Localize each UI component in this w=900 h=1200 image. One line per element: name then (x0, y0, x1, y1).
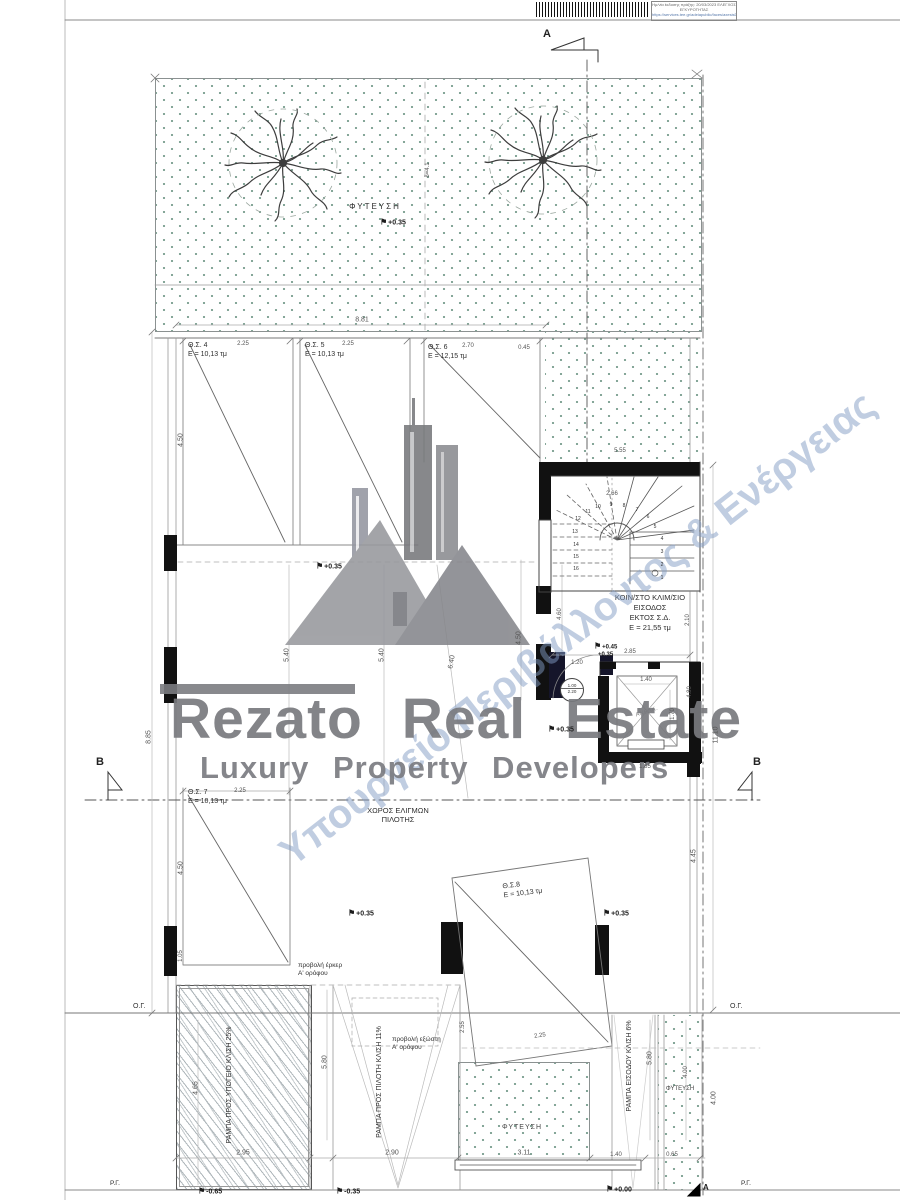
dimension-label: 5.40 (284, 648, 291, 662)
elevation-marker: ⚑+0.35 (348, 909, 374, 918)
floor-plan-page: Ημ/νία έκδοσης πράξης: 20/03/2023 ΕΛΕΓΧΟ… (0, 0, 900, 1200)
stair-step-number: 8 (623, 503, 626, 509)
dimension-label: 0.65 (666, 1152, 678, 1158)
elevation-marker: ⚑+0.45 (594, 642, 617, 651)
elevation-marker: +0.35 (598, 652, 613, 658)
elevation-flag-icon: ⚑ (594, 642, 601, 651)
elevation-flag-icon: ⚑ (548, 725, 555, 734)
elevation-flag-icon: ⚑ (603, 909, 610, 918)
dimension-label: 1.70 (670, 708, 676, 720)
elevation-marker: ⚑+0.00 (606, 1185, 632, 1194)
stair-step-number: 7 (636, 507, 639, 513)
elevation-flag-icon: ⚑ (316, 562, 323, 571)
dimension-label: 5.55 (614, 448, 626, 454)
dimension-label: 4.00 (711, 1091, 718, 1105)
elevation-flag-icon: ⚑ (198, 1187, 205, 1196)
elevation-marker: ⚑-0.65 (198, 1187, 222, 1196)
stair-step-number: 14 (573, 542, 579, 548)
dimension-label: 4.80 (687, 686, 693, 698)
dimension-label: 2.66 (606, 491, 618, 497)
stair-step-number: 9 (610, 502, 613, 508)
elevation-marker: ⚑+0.35 (548, 725, 574, 734)
elevation-marker: ⚑+0.35 (316, 562, 342, 571)
dimension-label: 2.85 (624, 649, 636, 655)
elevation-marker: ⚑-0.35 (336, 1187, 360, 1196)
dimension-label: 4.60 (557, 608, 563, 620)
dimension-label: 4.50 (516, 631, 523, 645)
stair-step-number: 6 (647, 514, 650, 520)
dimension-label: 1.05 (178, 950, 184, 962)
stair-step-number: 12 (575, 516, 581, 522)
dimension-label: 11.10 (713, 727, 720, 744)
stair-step-number: 11 (585, 509, 590, 515)
stair-step-number: 15 (573, 554, 579, 560)
dimension-label: 1.40 (610, 1152, 622, 1158)
dimension-label: 4.50 (178, 861, 185, 875)
dimension-label: δ=4.1 (425, 162, 431, 177)
dimension-label: 2.10 (685, 614, 691, 626)
dimension-label: 4.65 (193, 1081, 200, 1095)
stair-step-number: 16 (573, 566, 579, 572)
dimension-label: 3.11 (517, 1150, 530, 1157)
dimension-label: 2.25 (234, 788, 246, 794)
dimension-label: 5.80 (647, 1051, 654, 1065)
elevation-flag-icon: ⚑ (336, 1187, 343, 1196)
stair-step-number: 3 (661, 549, 664, 555)
dimension-label: 6.40 (447, 655, 456, 670)
dimension-label: 2.70 (462, 343, 474, 349)
dimension-label: 1.40 (640, 677, 652, 683)
dimension-label: 2.55 (460, 1021, 466, 1033)
stair-step-number: 4 (661, 536, 664, 542)
dimension-label: 5.40 (379, 648, 386, 662)
elevation-flag-icon: ⚑ (606, 1185, 613, 1194)
stair-step-number: 1 (661, 575, 664, 581)
dimension-label: 4.00 (683, 1066, 689, 1078)
dimension-label: 2.25 (534, 1032, 546, 1040)
dimension-label: 0.45 (518, 345, 530, 351)
stair-step-number: 10 (595, 504, 601, 510)
dimension-label: 8.81 (355, 317, 369, 324)
elevation-marker: ⚑+0.35 (603, 909, 629, 918)
elevation-flag-icon: ⚑ (348, 909, 355, 918)
stair-step-number: 13 (572, 529, 578, 535)
stair-step-number: 5 (654, 524, 657, 530)
dimension-label: 1.20 (571, 660, 583, 666)
dimension-label: 2.95 (236, 1150, 250, 1157)
dimension-label: 1.85 (639, 764, 651, 770)
dimension-label: 2.25 (237, 341, 249, 347)
elevation-marker: ⚑+0.35 (380, 218, 406, 227)
elevation-flag-icon: ⚑ (380, 218, 387, 227)
dimension-label: 2.90 (385, 1150, 399, 1157)
dimension-label: 2.25 (342, 341, 354, 347)
annotation-layer: 8.812.252.252.700.45δ=4.14.508.855.552.6… (0, 0, 900, 1200)
dimension-label: 5.80 (322, 1055, 329, 1069)
dimension-label: 4.50 (178, 433, 185, 447)
stair-step-number: 2 (661, 562, 664, 568)
dimension-label: 4.45 (691, 849, 698, 863)
dimension-label: 8.85 (146, 730, 153, 744)
